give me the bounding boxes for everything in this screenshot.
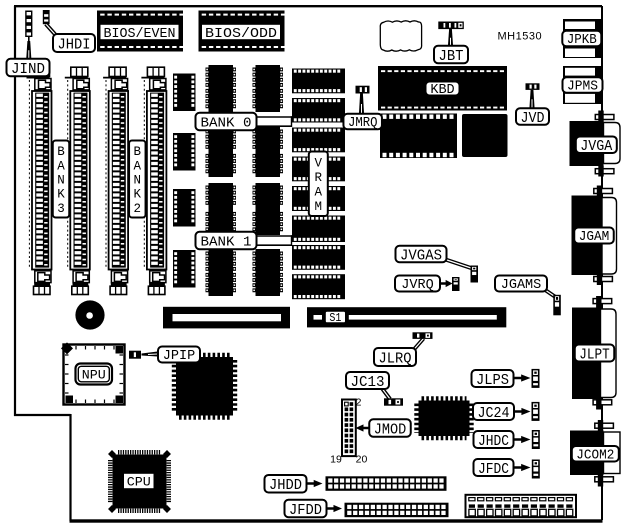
svg-text:JHDI: JHDI [58,36,91,53]
svg-text:JIND: JIND [11,61,45,78]
svg-text:JC13: JC13 [351,374,385,391]
svg-text:V: V [315,156,323,170]
svg-text:KBD: KBD [430,83,454,98]
svg-text:BIOS/EVEN: BIOS/EVEN [104,26,176,42]
svg-text:JVRQ: JVRQ [401,278,433,293]
svg-text:CPU: CPU [127,474,151,489]
svg-text:JGAM: JGAM [579,230,610,245]
svg-text:NPU: NPU [82,368,106,383]
svg-text:3: 3 [57,202,65,216]
svg-text:JLRQ: JLRQ [379,350,412,367]
svg-text:N: N [134,174,142,188]
svg-text:K: K [134,188,142,202]
svg-text:JMRQ: JMRQ [348,116,378,131]
svg-text:JBT: JBT [439,48,464,65]
svg-text:JVGAS: JVGAS [400,247,442,264]
svg-text:JHDD: JHDD [269,477,302,494]
svg-text:BANK 0: BANK 0 [201,115,252,131]
svg-text:JLPT: JLPT [579,346,610,363]
svg-text:JC24: JC24 [478,405,510,422]
svg-text:JPMS: JPMS [567,80,598,95]
svg-text:JCOM2: JCOM2 [576,448,614,463]
svg-text:B: B [57,145,65,159]
svg-text:JFDC: JFDC [478,461,509,478]
svg-text:20: 20 [356,454,368,466]
svg-text:B: B [134,145,142,159]
svg-text:2: 2 [134,202,142,216]
svg-text:19: 19 [330,454,342,466]
svg-text:MH1530: MH1530 [498,31,543,43]
svg-text:JVGA: JVGA [580,138,612,155]
svg-text:M: M [315,200,323,214]
svg-text:N: N [57,174,65,188]
svg-text:JHDC: JHDC [478,433,509,450]
svg-text:JMOD: JMOD [374,421,407,438]
svg-text:JVD: JVD [521,110,545,127]
svg-text:A: A [57,159,65,173]
svg-text:A: A [315,186,323,200]
svg-text:S1: S1 [329,311,341,325]
svg-text:JLPS: JLPS [476,372,509,389]
svg-text:BIOS/ODD: BIOS/ODD [205,26,277,42]
svg-text:K: K [57,188,65,202]
svg-text:A: A [134,159,142,173]
svg-text:BANK 1: BANK 1 [201,234,252,250]
svg-text:JFDD: JFDD [289,502,322,519]
svg-text:JPKB: JPKB [567,33,597,48]
svg-text:JGAMS: JGAMS [501,278,542,293]
svg-text:JPIP: JPIP [163,349,195,364]
svg-text:R: R [315,171,323,185]
svg-text:2: 2 [356,397,362,409]
